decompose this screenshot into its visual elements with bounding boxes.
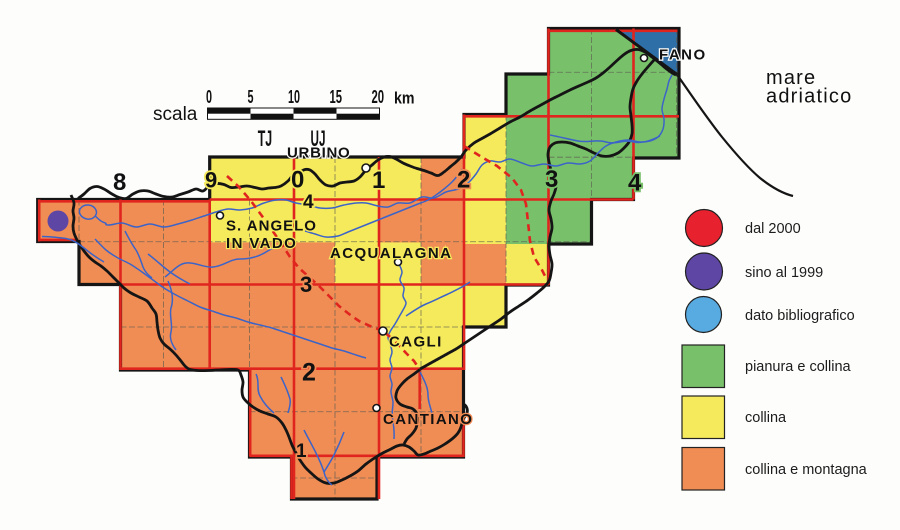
svg-text:S. ANGELO: S. ANGELO [226,218,317,235]
svg-text:collina: collina [745,410,787,426]
svg-text:adriatico: adriatico [766,86,852,108]
svg-text:10: 10 [288,86,300,107]
svg-text:TJ: TJ [258,126,273,151]
svg-text:dato bibliografico: dato bibliografico [745,308,855,324]
svg-text:dal 2000: dal 2000 [745,221,801,237]
svg-text:15: 15 [330,86,343,107]
svg-text:3: 3 [545,166,558,193]
svg-text:1: 1 [372,167,385,194]
svg-text:pianura e collina: pianura e collina [745,359,852,375]
svg-text:IN VADO: IN VADO [226,235,297,252]
svg-text:5: 5 [248,86,254,107]
svg-text:UJ: UJ [311,126,326,151]
svg-text:4: 4 [628,170,642,197]
svg-text:FANO: FANO [659,47,707,64]
svg-text:CANTIANO: CANTIANO [383,411,473,428]
svg-text:8: 8 [113,169,126,196]
svg-text:CAGLI: CAGLI [389,334,443,351]
svg-text:0: 0 [291,167,304,194]
svg-text:2: 2 [302,359,316,387]
svg-text:2: 2 [457,167,470,194]
svg-text:scala: scala [153,104,198,125]
svg-text:sino al 1999: sino al 1999 [745,265,823,281]
svg-text:ACQUALAGNA: ACQUALAGNA [330,245,452,262]
svg-text:km: km [394,89,415,108]
svg-text:collina e montagna: collina e montagna [745,462,868,478]
svg-text:9: 9 [205,168,217,193]
svg-text:4: 4 [303,192,314,213]
svg-text:1: 1 [296,441,307,462]
svg-text:3: 3 [300,272,312,297]
svg-text:0: 0 [206,86,212,107]
svg-text:20: 20 [372,86,385,107]
